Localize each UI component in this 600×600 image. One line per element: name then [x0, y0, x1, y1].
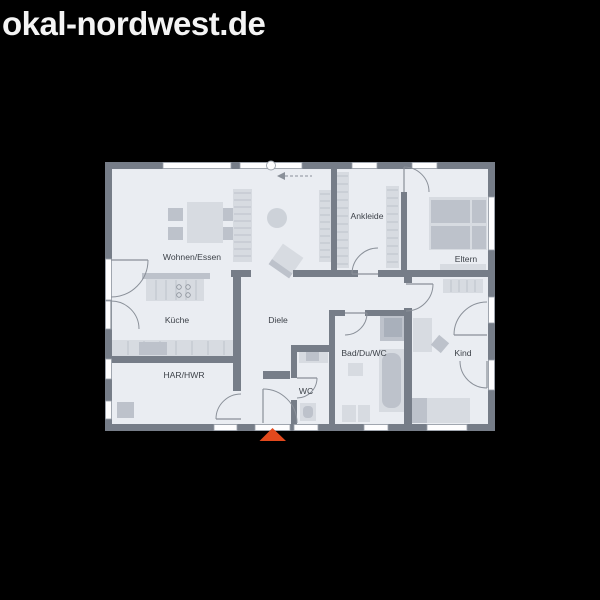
wall-segment	[233, 270, 241, 363]
wall-segment	[404, 270, 412, 283]
wall-segment	[404, 308, 412, 424]
desk-kind	[413, 318, 432, 352]
room-label-k-che: Küche	[165, 315, 190, 325]
window	[427, 425, 467, 431]
window	[106, 401, 112, 419]
room-label-kind: Kind	[454, 348, 471, 358]
page-background: { "header": { "title": "okal-nordwest.de…	[0, 0, 600, 600]
wall-segment	[291, 352, 297, 378]
wall-segment	[401, 192, 407, 277]
bath-toilet	[342, 405, 356, 422]
dining-chair	[168, 227, 183, 240]
room-label-eltern: Eltern	[455, 254, 478, 264]
wall-segment	[263, 371, 290, 379]
bath-sink	[348, 363, 363, 376]
floor-plan: Wohnen/EssenAnkleideElternKücheDieleBad/…	[0, 0, 600, 600]
dining-chair	[168, 208, 183, 221]
wardrobe-kind	[443, 279, 483, 293]
room-label-ankleide: Ankleide	[351, 211, 384, 221]
window	[489, 197, 495, 250]
bath-bidet	[358, 405, 370, 422]
wall-segment	[378, 270, 488, 277]
wall-segment	[233, 363, 241, 391]
window	[106, 359, 112, 379]
window-marker-circle	[267, 161, 276, 170]
pillow-parents	[472, 200, 486, 223]
mattress-parents	[431, 200, 470, 223]
kitchen-island	[146, 279, 204, 301]
shower-tray	[384, 318, 402, 337]
round-rug	[267, 208, 287, 228]
wall-segment	[293, 270, 358, 277]
bathtub-inner	[382, 353, 401, 408]
kitchen-island-bar	[142, 273, 210, 279]
wall-segment	[333, 310, 345, 316]
window	[106, 259, 112, 300]
window	[489, 360, 495, 390]
room-label-wohnen-essen: Wohnen/Essen	[163, 252, 221, 262]
window	[294, 425, 318, 431]
window	[412, 163, 437, 169]
window	[364, 425, 388, 431]
room-label-bad-du-wc: Bad/Du/WC	[341, 348, 386, 358]
pillow-parents	[472, 226, 486, 249]
wall-segment	[112, 356, 241, 363]
room-label-wc: WC	[299, 386, 313, 396]
dining-table	[187, 202, 223, 243]
bed-kind	[427, 398, 470, 423]
window	[214, 425, 237, 431]
room-label-diele: Diele	[268, 315, 288, 325]
window	[489, 297, 495, 323]
har-appliance	[117, 402, 134, 418]
window	[163, 163, 231, 169]
kitchen-appliance	[139, 342, 167, 355]
window	[352, 163, 377, 169]
wall-segment	[365, 310, 405, 316]
room-label-har-hwr: HAR/HWR	[163, 370, 204, 380]
wc-toilet-seat	[303, 406, 313, 418]
wall-segment	[291, 400, 297, 424]
wall-segment	[291, 345, 333, 352]
mattress-parents	[431, 226, 470, 249]
wall-segment	[329, 310, 335, 424]
wall-segment	[331, 169, 337, 277]
